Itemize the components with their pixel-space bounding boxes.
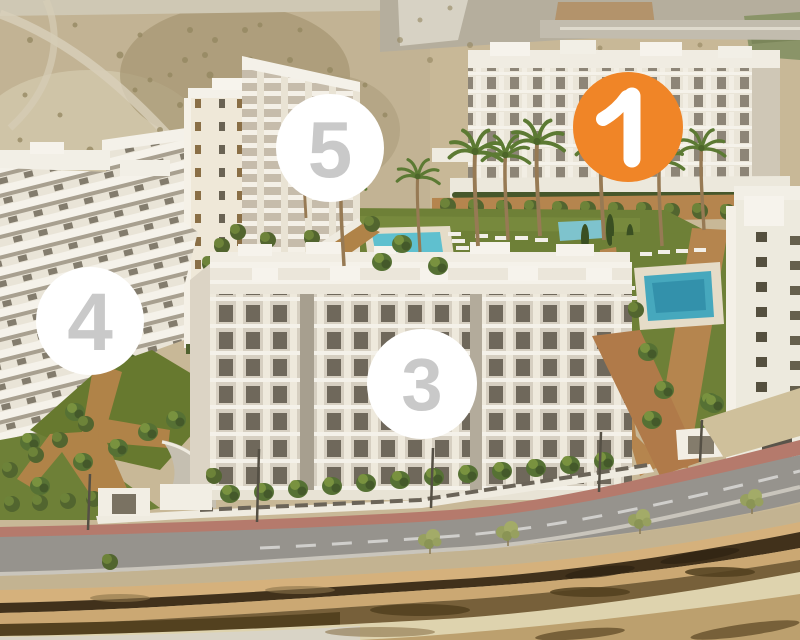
- svg-text:3: 3: [401, 343, 442, 426]
- svg-text:4: 4: [67, 277, 113, 368]
- svg-text:5: 5: [308, 105, 353, 194]
